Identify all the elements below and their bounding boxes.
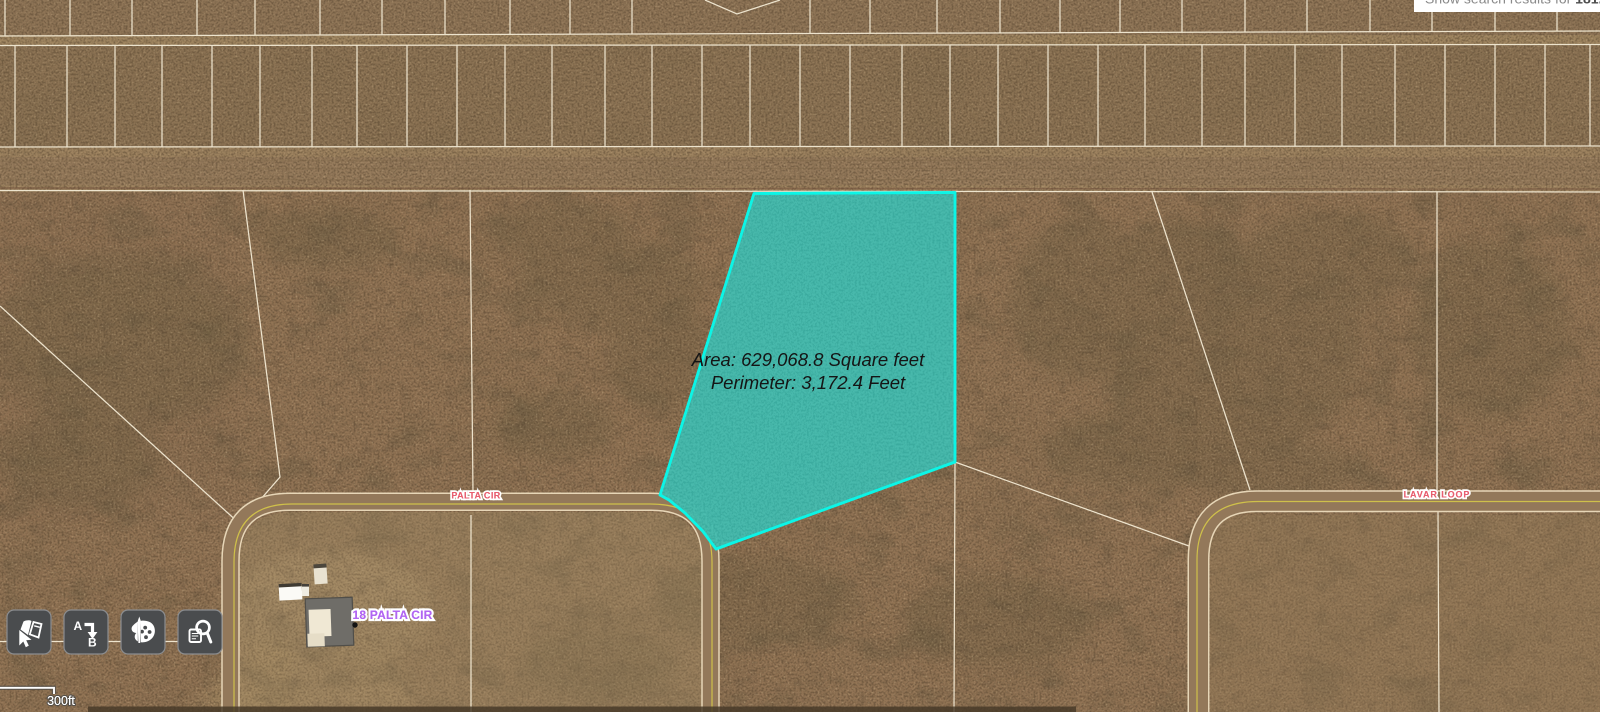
svg-text:LAVAR LOOP: LAVAR LOOP <box>1404 490 1471 500</box>
svg-text:18 PALTA CIR: 18 PALTA CIR <box>353 608 433 622</box>
svg-text:Show search results for 181. N: Show search results for 181. N <box>1425 0 1600 7</box>
svg-text:PALTA CIR: PALTA CIR <box>451 491 500 501</box>
svg-text:B: B <box>88 636 97 650</box>
svg-text:A: A <box>74 619 83 633</box>
svg-text:Area: 629,068.8 Square feet: Area: 629,068.8 Square feet <box>691 349 925 370</box>
svg-text:Perimeter: 3,172.4 Feet: Perimeter: 3,172.4 Feet <box>711 372 906 393</box>
svg-text:300ft: 300ft <box>47 694 75 708</box>
